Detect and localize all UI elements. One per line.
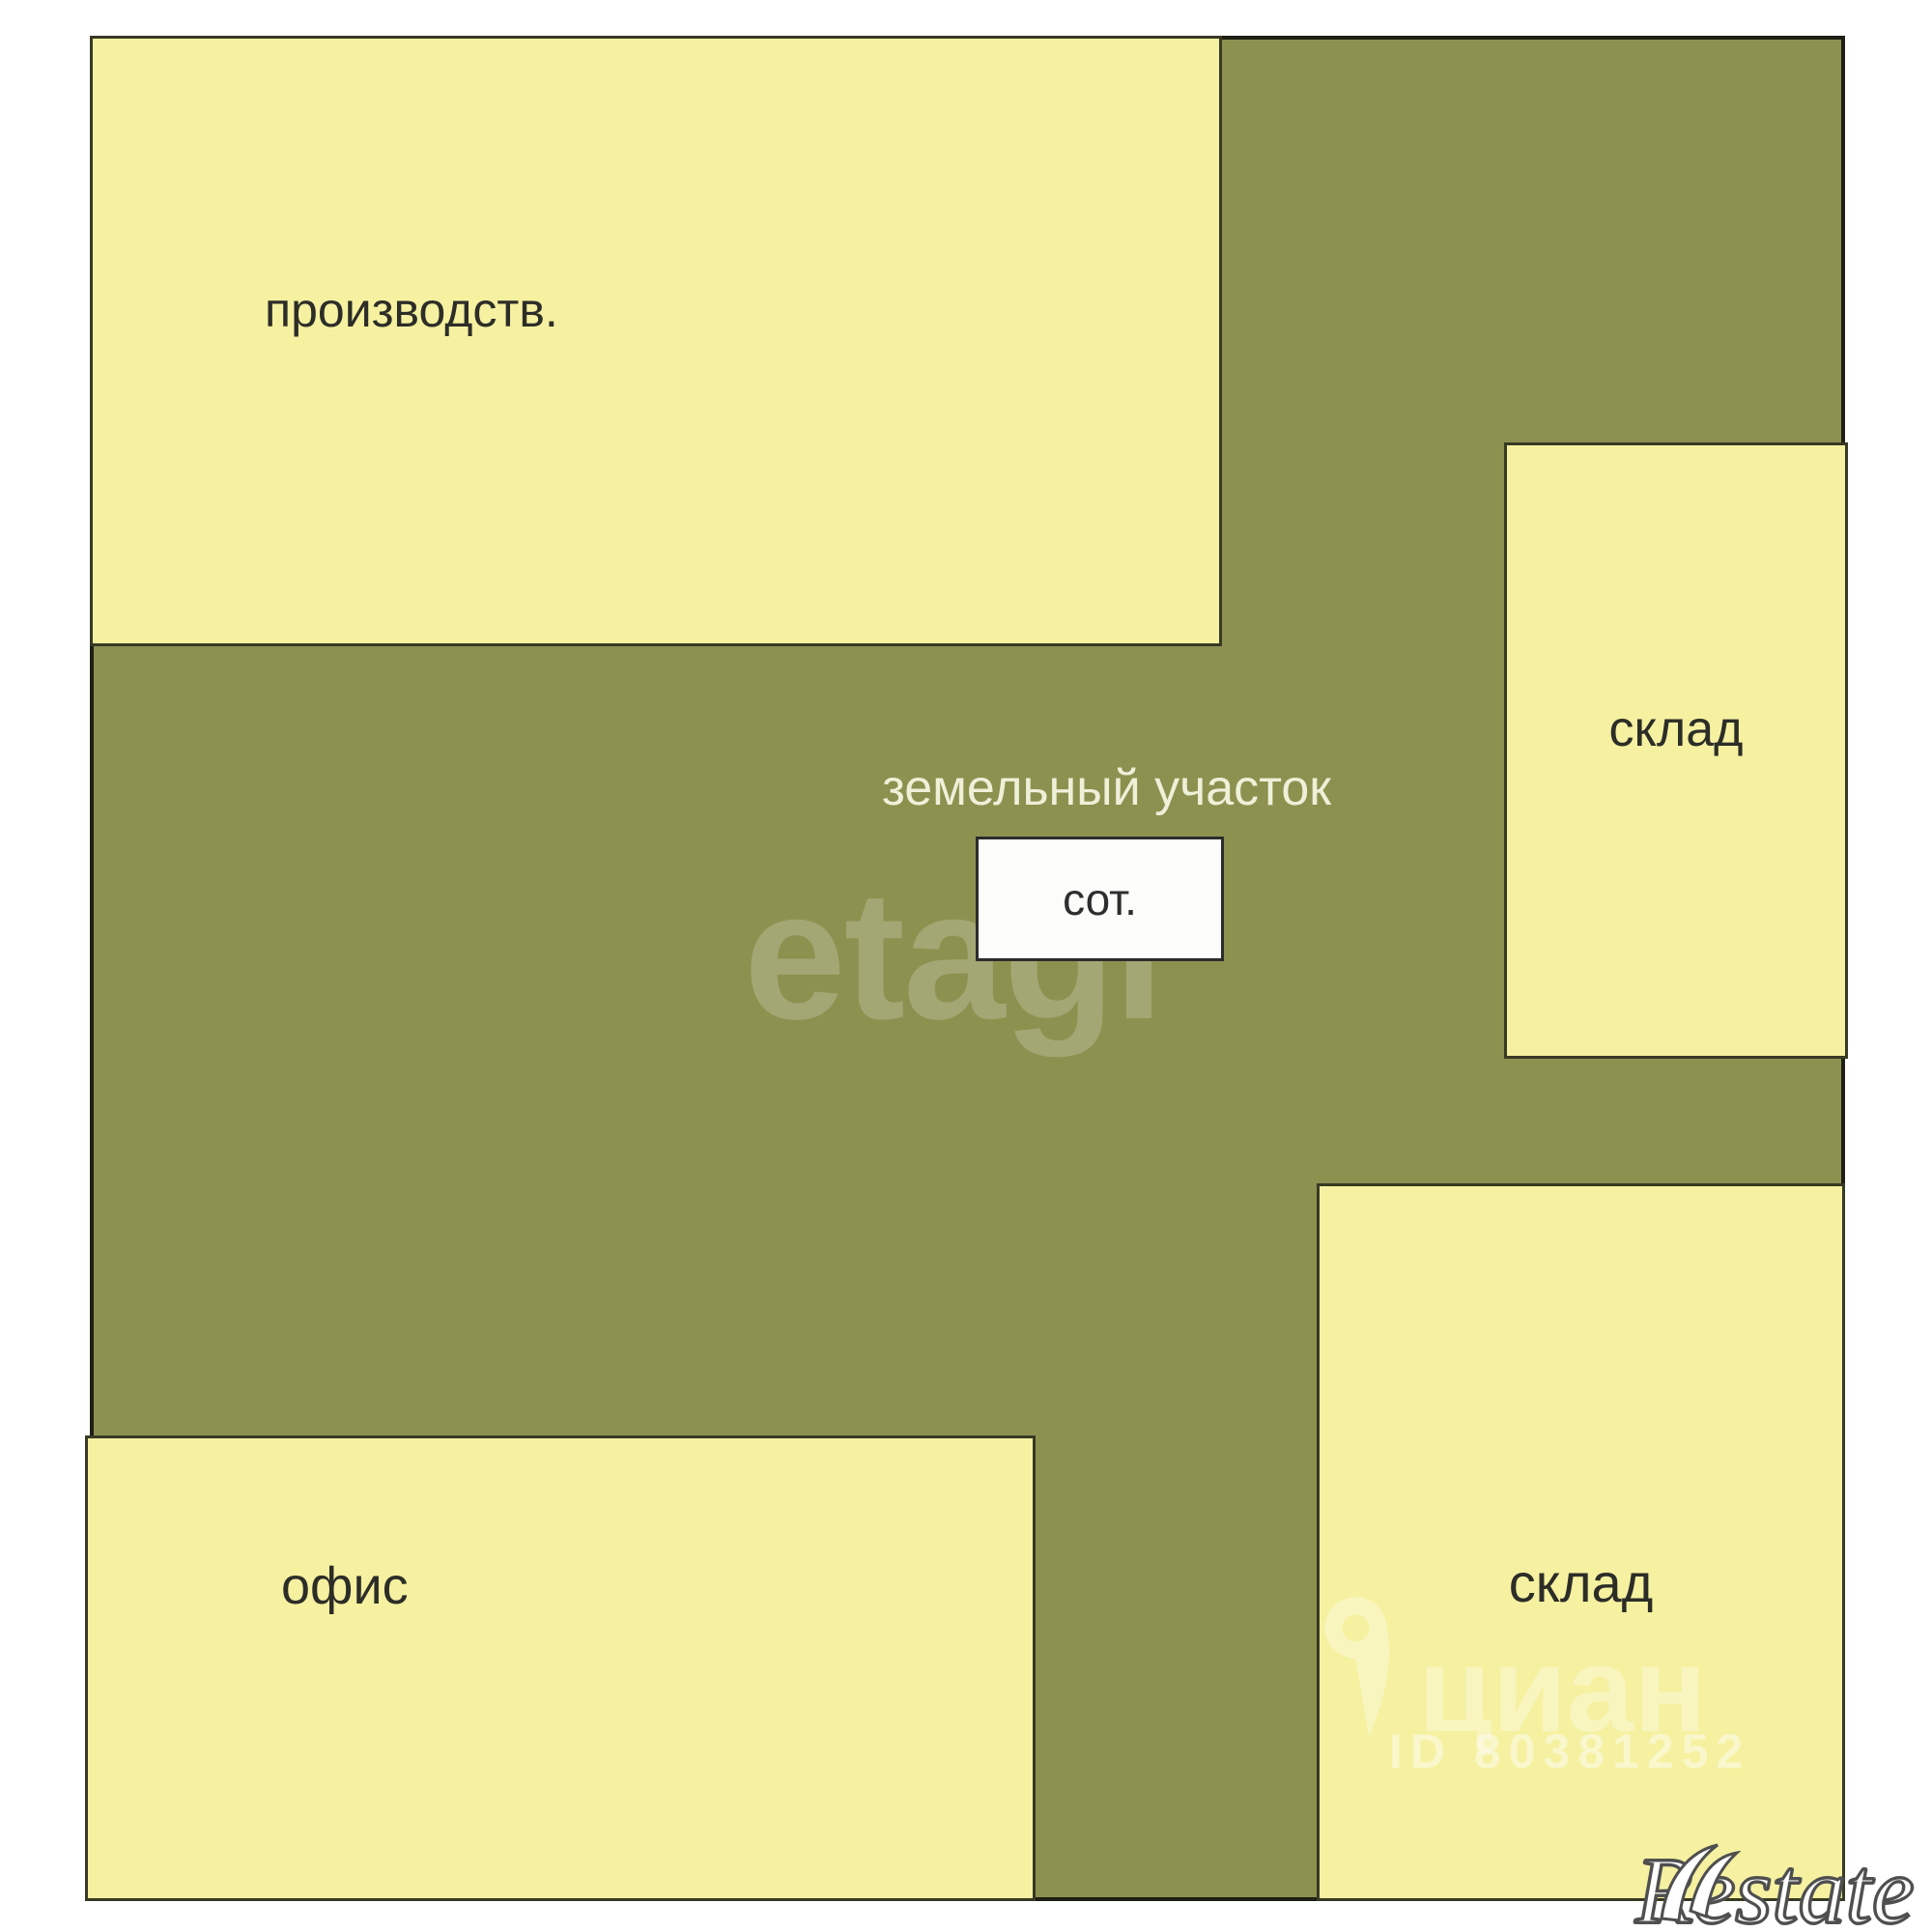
building-warehouse-upper: склад: [1504, 442, 1848, 1059]
area-box-label: сот.: [1063, 873, 1137, 925]
building-warehouse-upper-label: склад: [1507, 700, 1845, 758]
building-warehouse-lower-label: склад: [1320, 1551, 1842, 1614]
building-warehouse-lower: склад: [1317, 1183, 1845, 1901]
area-box: сот.: [976, 837, 1224, 961]
building-production-label: производств.: [265, 282, 558, 338]
building-office: офис: [85, 1435, 1036, 1901]
cian-id-watermark: ID 80381252: [1389, 1723, 1750, 1779]
building-production: производств.: [90, 36, 1222, 646]
land-plot-label: земельный участок: [882, 759, 1312, 817]
building-office-label: офис: [281, 1556, 409, 1616]
restate-logo-swoosh-icon: [1654, 1843, 1741, 1932]
